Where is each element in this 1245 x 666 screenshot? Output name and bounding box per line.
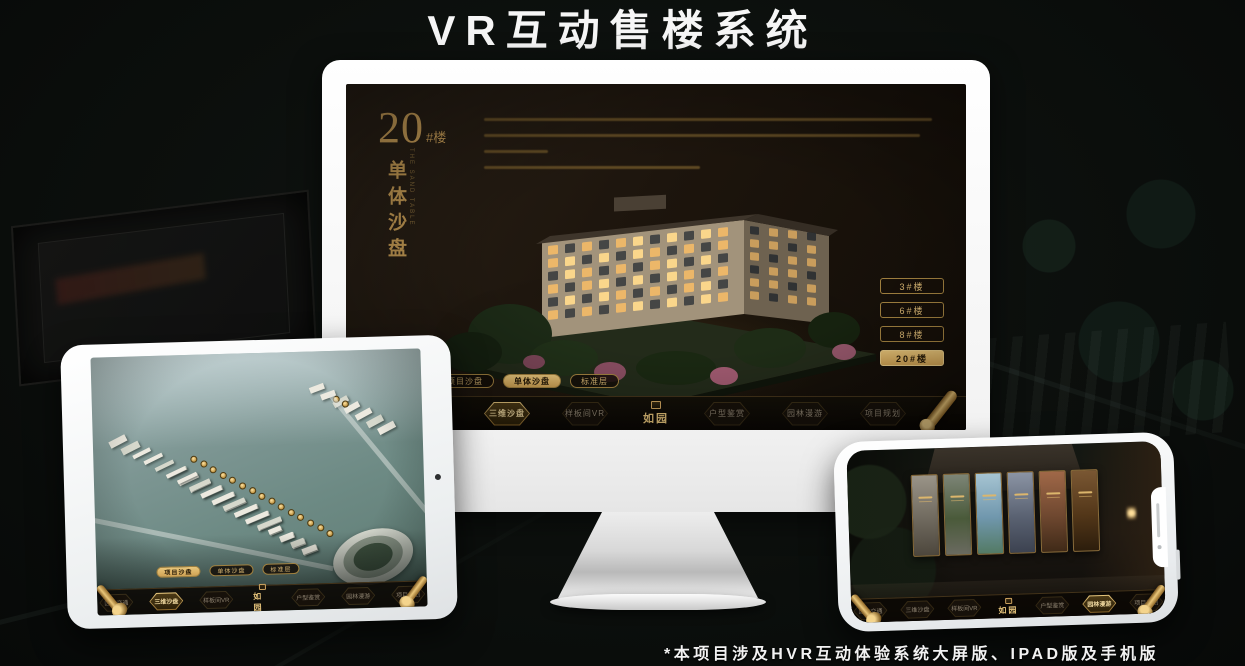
panorama-card-strip — [911, 469, 1100, 557]
floor-button-6#楼[interactable]: 6#楼 — [880, 302, 944, 318]
building-number: 20 — [378, 103, 424, 152]
garden-panorama[interactable] — [943, 473, 973, 556]
nav-item-样板间VR[interactable]: 样板间VR — [559, 401, 611, 427]
facade-panorama[interactable] — [1007, 471, 1037, 554]
nav-item-label: 样板间VR — [565, 408, 605, 419]
poster-canvas: VR互动售楼系统 20#楼 单体沙盘 THE SAND TABLE — [0, 0, 1245, 666]
nav-item-园林漫游[interactable]: 园林漫游 — [339, 585, 378, 606]
nav-item-项目规划[interactable]: 项目规划 — [857, 401, 909, 427]
ipad-screen: 项目沙盘单体沙盘标准层 区位交通三维沙盘样板间VR如园户型鉴赏园林漫游项目规划 — [90, 348, 427, 615]
nav-item-样板间VR[interactable]: 样板间VR — [197, 589, 236, 610]
seal-emblem-icon — [258, 584, 265, 590]
monitor-stand-base — [550, 594, 766, 610]
nav-item-label: 户型鉴赏 — [296, 592, 320, 602]
nav-item-label: 园林漫游 — [1087, 599, 1111, 609]
lantern-light — [1126, 506, 1136, 520]
phone-notch — [1151, 487, 1169, 567]
scroll-icon[interactable] — [922, 388, 959, 430]
nav-item-label: 园林漫游 — [787, 408, 823, 419]
nav-item-三维沙盘[interactable]: 三维沙盘 — [481, 401, 533, 427]
nav-item-户型鉴赏[interactable]: 户型鉴赏 — [289, 587, 328, 608]
phone-device: 区位交通三维沙盘样板间VR如园户型鉴赏园林漫游项目规划 — [833, 432, 1179, 633]
tab-标准层[interactable]: 标准层 — [262, 563, 299, 575]
camera-icon — [1157, 545, 1161, 549]
nav-item-label: 三维沙盘 — [489, 408, 525, 419]
tab-标准层[interactable]: 标准层 — [570, 374, 619, 388]
nav-item-园林漫游[interactable]: 园林漫游 — [779, 401, 831, 427]
phone-screen: 区位交通三维沙盘样板间VR如园户型鉴赏园林漫游项目规划 — [846, 441, 1165, 623]
tab-单体沙盘[interactable]: 单体沙盘 — [209, 564, 253, 576]
brand-logo[interactable]: 如园 — [253, 584, 272, 613]
building-number-suffix: #楼 — [426, 130, 446, 145]
brand-logo[interactable]: 如园 — [998, 597, 1019, 616]
nav-item-label: 项目规划 — [865, 408, 901, 419]
footnote-caption: *本项目涉及HVR互动体验系统大屏版、IPAD版及手机版 — [664, 640, 1159, 664]
nav-item-户型鉴赏[interactable]: 户型鉴赏 — [701, 401, 753, 427]
seal-emblem-icon — [651, 401, 661, 409]
nav-item-label: 样板间VR — [951, 603, 978, 613]
nav-item-三维沙盘[interactable]: 三维沙盘 — [898, 599, 937, 620]
floor-button-8#楼[interactable]: 8#楼 — [880, 326, 944, 342]
brand-logo[interactable]: 如园 — [643, 401, 669, 426]
ipad-device: 项目沙盘单体沙盘标准层 区位交通三维沙盘样板间VR如园户型鉴赏园林漫游项目规划 — [60, 335, 458, 630]
camera-icon — [435, 474, 441, 480]
nav-item-三维沙盘[interactable]: 三维沙盘 — [147, 591, 186, 612]
autumn-trees-panorama[interactable] — [1039, 470, 1069, 553]
nav-item-户型鉴赏[interactable]: 户型鉴赏 — [1033, 594, 1072, 615]
nav-item-label: 样板间VR — [203, 595, 230, 605]
nav-item-label: 户型鉴赏 — [1040, 600, 1064, 610]
headline-subtitle: 单体沙盘 — [382, 160, 409, 280]
nav-item-label: 园林漫游 — [346, 591, 370, 601]
brand-logo-text: 如园 — [643, 410, 669, 426]
nav-item-样板间VR[interactable]: 样板间VR — [945, 597, 984, 618]
nav-item-label: 户型鉴赏 — [709, 408, 745, 419]
tab-单体沙盘[interactable]: 单体沙盘 — [503, 374, 561, 388]
floor-button-20#楼[interactable]: 20#楼 — [880, 350, 944, 366]
sky-building-panorama[interactable] — [975, 472, 1005, 555]
nav-item-label: 三维沙盘 — [154, 596, 178, 606]
interior-shelf-panorama[interactable] — [1071, 469, 1101, 552]
page-title: VR互动售楼系统 — [0, 0, 1245, 54]
background-buildings — [986, 322, 1233, 448]
brand-logo-text: 如园 — [998, 604, 1018, 616]
hallway-panorama[interactable] — [911, 474, 941, 557]
sandbox-mode-tabs: 项目沙盘单体沙盘标准层 — [436, 374, 619, 388]
floor-button-3#楼[interactable]: 3#楼 — [880, 278, 944, 294]
nav-item-园林漫游[interactable]: 园林漫游 — [1080, 593, 1119, 614]
speaker-icon — [1156, 503, 1160, 537]
seal-emblem-icon — [1005, 597, 1012, 603]
tab-项目沙盘[interactable]: 项目沙盘 — [156, 566, 200, 578]
nav-item-label: 三维沙盘 — [905, 604, 929, 614]
brand-logo-text: 如园 — [253, 591, 272, 613]
floor-button-group: 3#楼6#楼8#楼20#楼 — [880, 278, 944, 366]
